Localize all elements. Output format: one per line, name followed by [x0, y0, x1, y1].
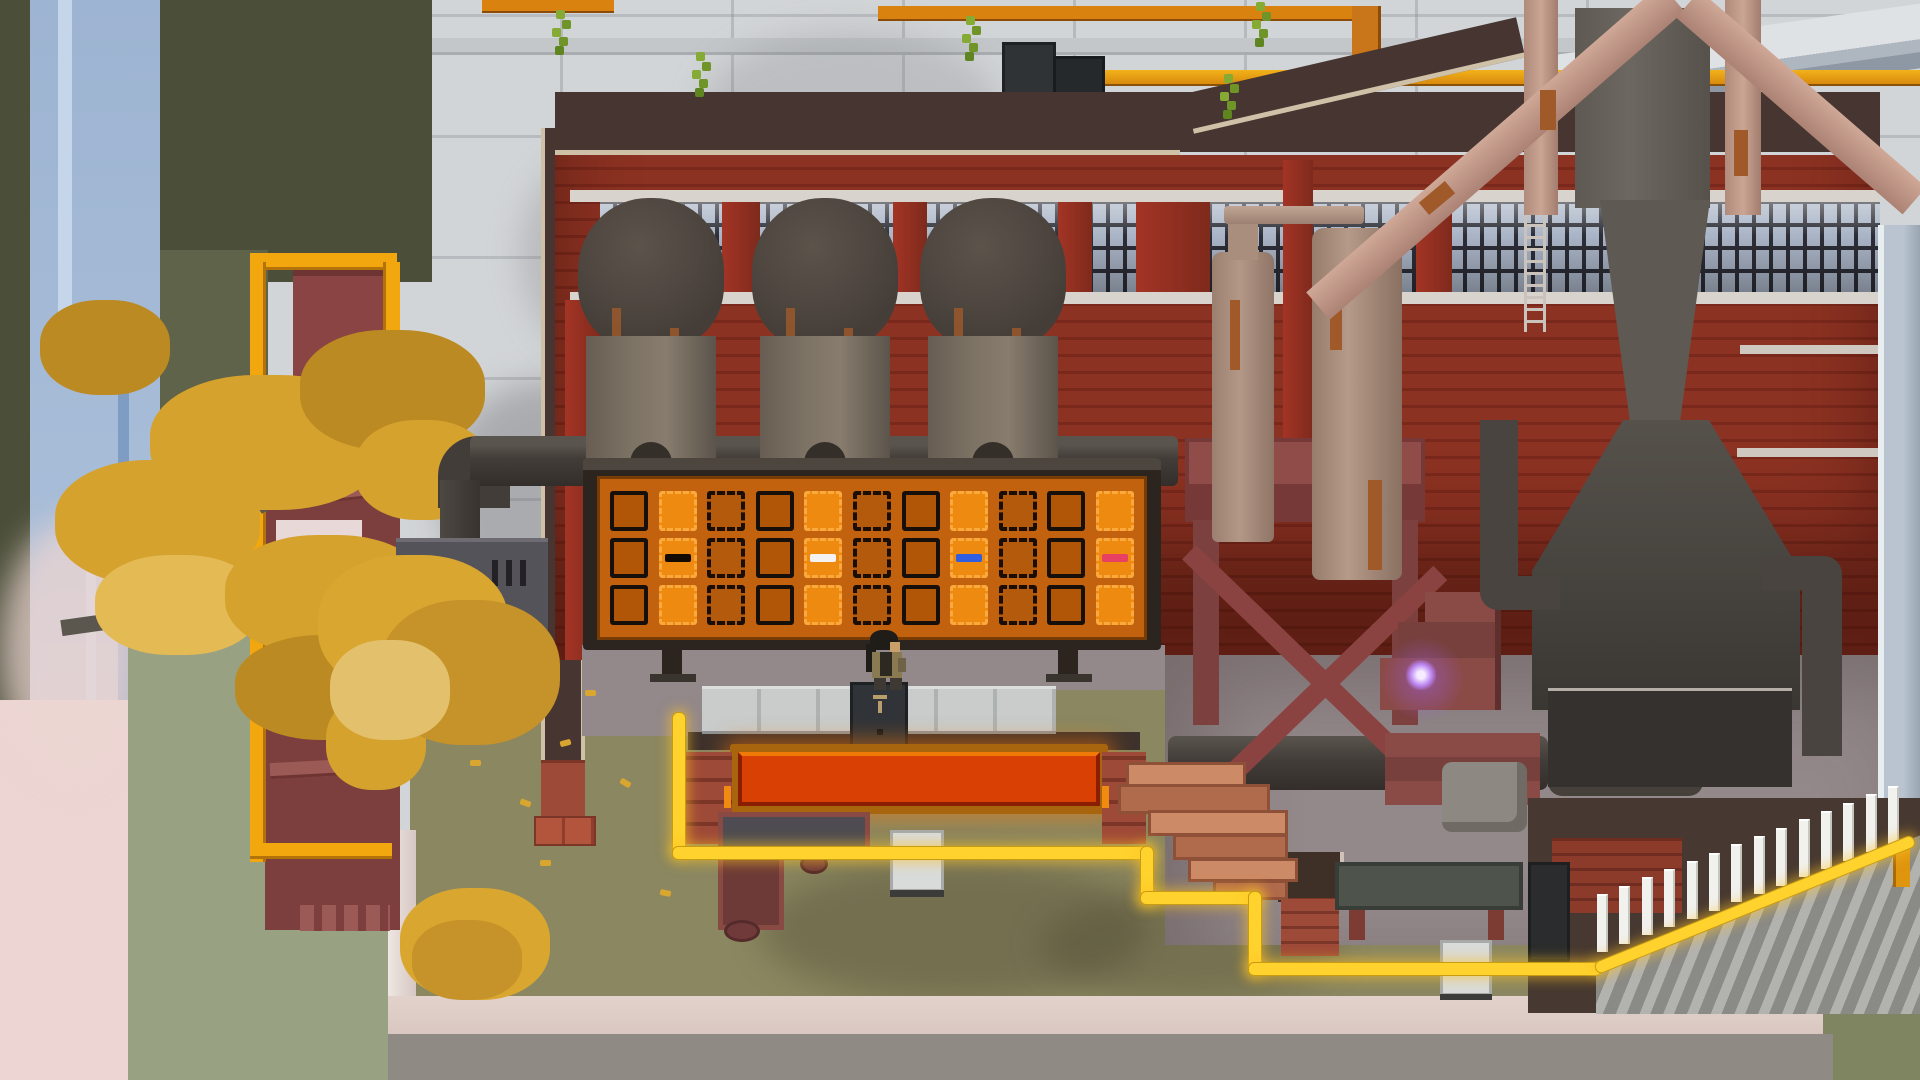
board-leg: [1058, 650, 1078, 676]
board-cell-slot[interactable]: [610, 538, 648, 578]
storage-tank: [752, 198, 898, 478]
tower-rail-bottom: [250, 843, 392, 859]
board-cell-tile[interactable]: [1096, 585, 1134, 625]
board-cell-tile[interactable]: [950, 538, 988, 578]
trough-cap-notch: [1102, 786, 1109, 808]
tower-rail-top: [250, 253, 397, 270]
still-rust: [1230, 300, 1240, 370]
tile-mark: [810, 554, 836, 562]
board-cell-ghost[interactable]: [853, 491, 891, 531]
board-cell-slot[interactable]: [610, 585, 648, 625]
trough-frame: [730, 744, 1108, 814]
stair-baluster: [1888, 786, 1899, 844]
character-leg: [890, 678, 902, 690]
vine-icon: [1256, 2, 1265, 11]
leaf-scatter: [470, 760, 481, 766]
stair-baluster: [1776, 828, 1787, 886]
board-cell-slot[interactable]: [1047, 538, 1085, 578]
vine-icon: [1224, 74, 1233, 83]
board-leg-plate: [1046, 674, 1092, 682]
tank-dome: [578, 198, 724, 350]
game-viewport: [0, 0, 1920, 1080]
board-leg-plate: [650, 674, 696, 682]
board-cell-tile[interactable]: [950, 585, 988, 625]
foliage: [40, 300, 170, 395]
board-cell-ghost[interactable]: [853, 538, 891, 578]
furnace-ladder: [1524, 212, 1546, 332]
bench-leg: [1349, 906, 1365, 940]
white-pad[interactable]: [890, 830, 944, 892]
console-mark: [873, 695, 887, 699]
stair-baluster: [1664, 869, 1675, 927]
sill-band-right: [1740, 345, 1880, 354]
rust-spot: [1734, 130, 1748, 176]
glowing-cable-segment: [1248, 962, 1602, 976]
board-cell-tile[interactable]: [1096, 491, 1134, 531]
leaf-pile-bottom: [412, 920, 522, 1000]
white-pad-shadow: [890, 890, 944, 897]
lower-steps: [1385, 733, 1540, 757]
board-cell-tile[interactable]: [1096, 538, 1134, 578]
board-cell-slot[interactable]: [756, 491, 794, 531]
board-cell-tile[interactable]: [950, 491, 988, 531]
character-leg: [874, 678, 886, 690]
board-frame-top-strip: [583, 458, 1161, 470]
furnace-base: [1548, 688, 1792, 787]
waterfall-streak-light: [58, 0, 72, 320]
console-mark: [878, 701, 882, 713]
board-cell-slot[interactable]: [902, 491, 940, 531]
cart[interactable]: [718, 812, 870, 938]
board-cell-slot[interactable]: [902, 585, 940, 625]
window-brick-pillar: [1136, 202, 1210, 292]
brick-column: [1281, 898, 1339, 956]
pallet-slab: [1173, 834, 1288, 860]
furnace-pipe-right-stub: [1762, 556, 1822, 590]
tile-mark: [1102, 554, 1128, 562]
puzzle-board-frame: [583, 458, 1161, 650]
board-cell-tile[interactable]: [804, 585, 842, 625]
board-cell-slot[interactable]: [1047, 491, 1085, 531]
tile-mark: [665, 554, 691, 562]
pale-wall-right: [1878, 225, 1920, 800]
stair-baluster: [1754, 836, 1765, 894]
bench-leg: [1488, 906, 1504, 940]
leaf-scatter: [540, 860, 551, 866]
bollard: [520, 560, 526, 586]
board-cell-slot[interactable]: [902, 538, 940, 578]
pallet-slab: [1148, 810, 1288, 836]
board-cell-ghost[interactable]: [707, 491, 745, 531]
board-cell-tile[interactable]: [659, 585, 697, 625]
stair-baluster: [1687, 861, 1698, 919]
glowing-cable-segment: [672, 712, 686, 854]
character-face: [890, 642, 900, 652]
gravel-pile: [1442, 762, 1527, 832]
stair-baluster: [1597, 894, 1608, 952]
board-cell-slot[interactable]: [1047, 585, 1085, 625]
glowing-cable-segment: [672, 846, 1152, 860]
console-dot: [877, 729, 883, 735]
leaf-pile: [330, 640, 450, 740]
vine-icon: [696, 52, 705, 61]
tank-dome: [752, 198, 898, 350]
puzzle-board-grid: [600, 479, 1144, 637]
board-cell-slot[interactable]: [610, 491, 648, 531]
board-cell-slot[interactable]: [756, 538, 794, 578]
stair-baluster: [1821, 811, 1832, 869]
path-band: [388, 1034, 1833, 1080]
still-tank-narrow: [1212, 252, 1274, 542]
stair-baluster: [1843, 803, 1854, 861]
trough-fill: [738, 752, 1100, 806]
pallet-slab: [1188, 858, 1298, 882]
board-cell-ghost[interactable]: [999, 491, 1037, 531]
cart-wheel: [724, 920, 760, 942]
stair-baluster: [1866, 794, 1877, 852]
board-cell-ghost[interactable]: [853, 585, 891, 625]
storage-tank: [920, 198, 1066, 478]
furnace-pipe-left-stub: [1500, 576, 1560, 610]
cliff-top: [128, 0, 432, 282]
vine-icon: [556, 10, 565, 19]
stair-brick-patch: [1552, 838, 1682, 913]
board-cell-tile[interactable]: [659, 538, 697, 578]
stair-baluster: [1799, 819, 1810, 877]
puzzle-board-panel: [597, 476, 1147, 640]
board-leg: [662, 650, 682, 676]
stair-door: [1528, 862, 1570, 962]
white-pad-shadow: [1440, 994, 1492, 1000]
trough-cap-notch: [724, 786, 731, 808]
leaf-scatter: [585, 690, 596, 696]
board-row: [610, 491, 1134, 531]
tank-dome: [920, 198, 1066, 350]
board-cell-ghost[interactable]: [999, 538, 1037, 578]
tower-steps-bottom: [300, 905, 390, 931]
board-row: [610, 538, 1134, 578]
stair-baluster: [1619, 886, 1630, 944]
stair-baluster: [1731, 844, 1742, 902]
board-cell-ghost[interactable]: [707, 585, 745, 625]
character-vest: [880, 652, 892, 676]
tile-mark: [956, 554, 982, 562]
board-cell-tile[interactable]: [659, 491, 697, 531]
board-cell-ghost[interactable]: [707, 538, 745, 578]
board-cell-slot[interactable]: [756, 585, 794, 625]
board-cell-tile[interactable]: [804, 491, 842, 531]
vine-icon: [966, 16, 975, 25]
board-cell-tile[interactable]: [804, 538, 842, 578]
still-rust: [1368, 480, 1382, 570]
bollard: [506, 560, 512, 586]
cart-leg: [718, 850, 784, 930]
storage-tank: [578, 198, 724, 478]
character[interactable]: [866, 630, 906, 692]
bench: [1335, 862, 1523, 910]
board-row: [610, 585, 1134, 625]
still-pipe-top: [1224, 206, 1364, 224]
rust-spot: [1540, 90, 1556, 130]
orange-pipe-top: [878, 6, 1378, 21]
brick-pile-small: [534, 816, 596, 846]
purple-orb[interactable]: [1406, 660, 1436, 690]
board-cell-ghost[interactable]: [999, 585, 1037, 625]
yellow-pipe-top-left: [482, 0, 614, 13]
stair-baluster: [1642, 877, 1653, 935]
character-arm: [898, 658, 906, 672]
sill-band-right: [1737, 448, 1880, 457]
glowing-cable-segment: [1140, 891, 1260, 905]
stair-baluster: [1709, 853, 1720, 911]
